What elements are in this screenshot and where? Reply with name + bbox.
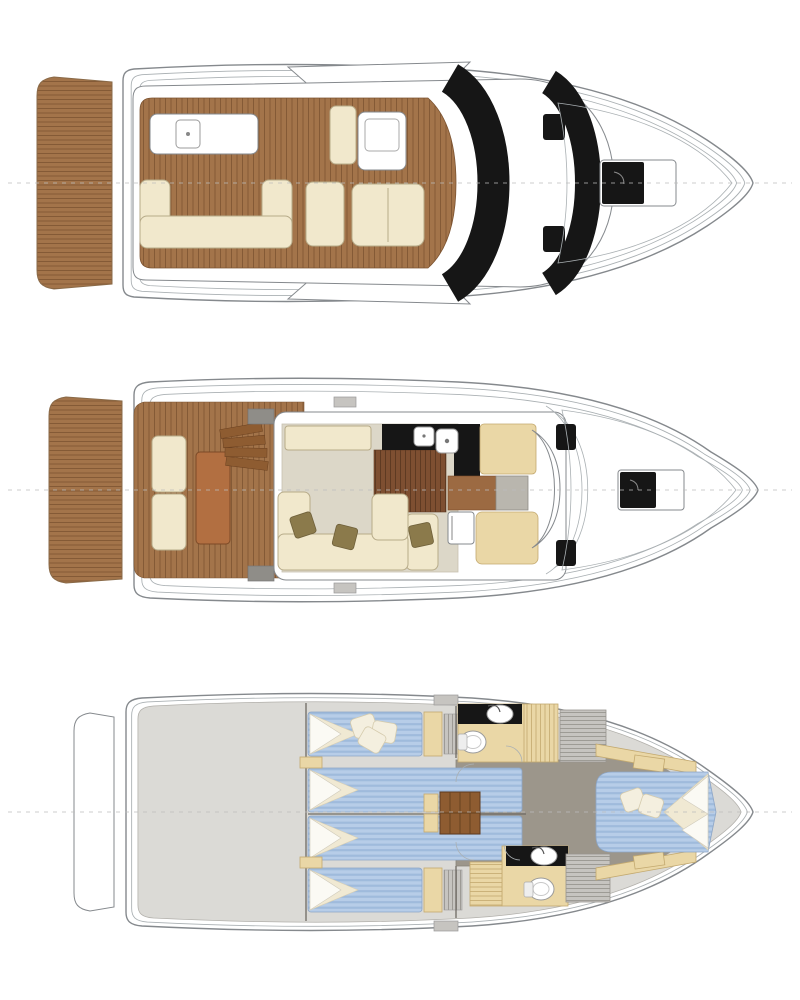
wardrobe	[424, 712, 442, 756]
berth-4	[308, 868, 422, 912]
lounge-seat	[306, 182, 344, 246]
side-window-port	[543, 114, 565, 140]
shower-grate	[470, 862, 502, 906]
wardrobe	[424, 868, 442, 912]
shower-grate	[524, 704, 558, 762]
helm-seats	[352, 184, 424, 246]
yacht-three-deck-plan	[0, 0, 800, 1000]
washbasin	[487, 705, 513, 723]
sofa-pillow-2	[332, 524, 359, 551]
head-forward	[458, 704, 558, 762]
side-window-starboard	[556, 540, 576, 566]
fridge	[448, 512, 474, 544]
deck-main	[8, 378, 792, 602]
side-gate-starboard	[334, 583, 356, 593]
lower-cabinet-tan	[476, 512, 538, 564]
side-gate-port	[434, 695, 458, 705]
side-landing-port	[248, 409, 274, 424]
washbasin	[531, 847, 557, 865]
cistern	[524, 882, 533, 897]
sink-drain-2	[445, 439, 449, 443]
brown-floor-patch	[448, 476, 496, 510]
helm-console	[358, 112, 406, 170]
side-gate-starboard	[434, 921, 458, 931]
nightstand	[300, 757, 322, 768]
side-window-starboard	[543, 226, 565, 252]
helm-seat	[480, 424, 536, 474]
bar-faucet	[186, 132, 190, 136]
berth-2	[308, 768, 522, 812]
sink-drain	[422, 434, 425, 437]
sideboard	[285, 426, 371, 450]
cabinet-gray	[496, 476, 528, 510]
cistern	[458, 734, 467, 750]
cockpit-table	[196, 452, 230, 544]
nightstand	[300, 857, 322, 868]
berth-3	[308, 816, 522, 860]
yacht-deck-plan-figure	[0, 0, 800, 1000]
deck-lower	[8, 694, 792, 932]
side-gate-port	[334, 397, 356, 407]
wet-bar	[150, 114, 258, 154]
hatch-rug	[444, 870, 462, 910]
dinette-seat	[406, 514, 438, 570]
swim-platform	[49, 397, 122, 583]
deck-flybridge	[8, 62, 792, 304]
side-landing-starboard	[248, 566, 274, 581]
companion-seat	[330, 106, 356, 164]
